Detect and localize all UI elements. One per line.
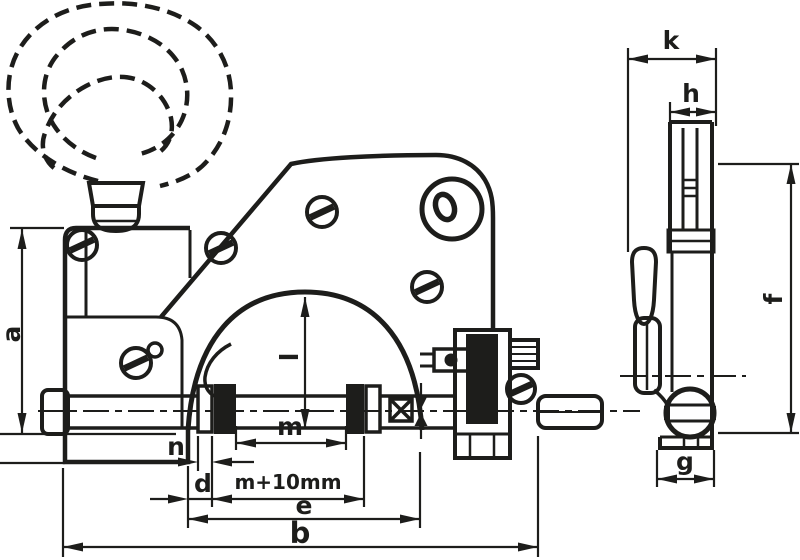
arrow-left-icon bbox=[670, 108, 690, 117]
dimension-f: f bbox=[718, 164, 799, 433]
arrow-left-icon bbox=[657, 475, 677, 484]
dim-g-label: g bbox=[676, 447, 694, 476]
arrow-down-icon bbox=[18, 413, 27, 433]
arrow-right-icon bbox=[400, 515, 420, 524]
arrow-up-icon bbox=[18, 229, 27, 249]
adjuster-lines bbox=[420, 354, 434, 366]
screw-head-icon bbox=[121, 348, 151, 378]
screw-head-icon bbox=[307, 197, 337, 227]
dimension-m: m bbox=[236, 412, 346, 450]
knob-knurl-lines bbox=[510, 347, 538, 361]
side-slot-cross-lines bbox=[683, 180, 697, 196]
arrow-left-icon bbox=[188, 515, 208, 524]
screw-head-icon bbox=[412, 272, 442, 302]
dim-n-label: n bbox=[167, 432, 185, 461]
marker-arrow-up-icon bbox=[415, 413, 428, 426]
pivot-pin bbox=[445, 354, 458, 367]
beam-clamp-drawing: a l m n bbox=[0, 0, 800, 560]
arrow-right-icon bbox=[696, 55, 716, 64]
front-view: a l m n bbox=[0, 3, 640, 557]
arrow-left-icon bbox=[212, 495, 232, 504]
hook-outer-dashed-contour bbox=[8, 3, 231, 186]
arrow-right-icon bbox=[694, 475, 714, 484]
side-body bbox=[632, 122, 714, 448]
screw-slot bbox=[310, 207, 334, 218]
dim-m-label: m bbox=[277, 412, 303, 441]
hook-inner-dashed-contour bbox=[44, 29, 187, 158]
screw-head-icon bbox=[206, 233, 236, 263]
left-jaw-block bbox=[214, 384, 236, 434]
screw-head-icon bbox=[67, 230, 97, 260]
shackle-capsule bbox=[632, 248, 656, 324]
dim-h-label: h bbox=[682, 79, 700, 108]
arrow-left-icon bbox=[628, 55, 648, 64]
boss-slot-oval bbox=[432, 192, 458, 223]
dim-m10-label: m+10mm bbox=[234, 470, 341, 494]
arrow-right-icon bbox=[518, 543, 538, 552]
spindle-assembly bbox=[42, 330, 602, 458]
side-view: k h f g bbox=[620, 26, 799, 487]
suspension-lug bbox=[89, 183, 143, 231]
dim-f-label: f bbox=[759, 292, 788, 304]
dim-d-label: d bbox=[194, 469, 212, 498]
arrow-left-icon bbox=[236, 439, 256, 448]
dimension-h: h bbox=[670, 79, 716, 126]
right-jaw-plate bbox=[366, 386, 380, 432]
dim-l-label: l bbox=[275, 353, 304, 362]
arrow-up-icon bbox=[787, 164, 796, 184]
right-jaw-block bbox=[346, 384, 364, 434]
arrow-left-icon bbox=[212, 458, 232, 467]
screw-slot bbox=[124, 358, 148, 369]
arrow-left-icon bbox=[63, 543, 83, 552]
arrow-right-icon bbox=[696, 108, 716, 117]
cam-circle bbox=[666, 389, 714, 437]
cam-side-ticks bbox=[667, 406, 713, 420]
arrow-right-icon bbox=[344, 495, 364, 504]
screw-slot bbox=[510, 384, 532, 394]
arrow-right-icon bbox=[326, 439, 346, 448]
screw-slot bbox=[70, 240, 94, 251]
dim-k-label: k bbox=[663, 26, 681, 55]
dim-b-label: b bbox=[290, 516, 311, 550]
dimension-l: l bbox=[275, 297, 310, 429]
arrow-down-icon bbox=[787, 413, 796, 433]
dimension-g: g bbox=[657, 447, 714, 487]
arrow-up-icon bbox=[301, 297, 310, 317]
hook-saddle-dashed-curve bbox=[43, 77, 172, 168]
screw-slot bbox=[415, 282, 439, 293]
pilot-hole-circle bbox=[148, 343, 162, 357]
technical-drawing-canvas: a l m n bbox=[0, 0, 800, 560]
dim-a-label: a bbox=[0, 326, 26, 343]
bracket-base-ribs bbox=[470, 434, 494, 458]
cam-slot-lines bbox=[668, 405, 712, 421]
screw-heads bbox=[67, 179, 482, 378]
arrow-right-icon bbox=[168, 495, 188, 504]
crane-hook-phantom-icon bbox=[8, 3, 231, 186]
lug-trapezoid bbox=[89, 183, 143, 206]
